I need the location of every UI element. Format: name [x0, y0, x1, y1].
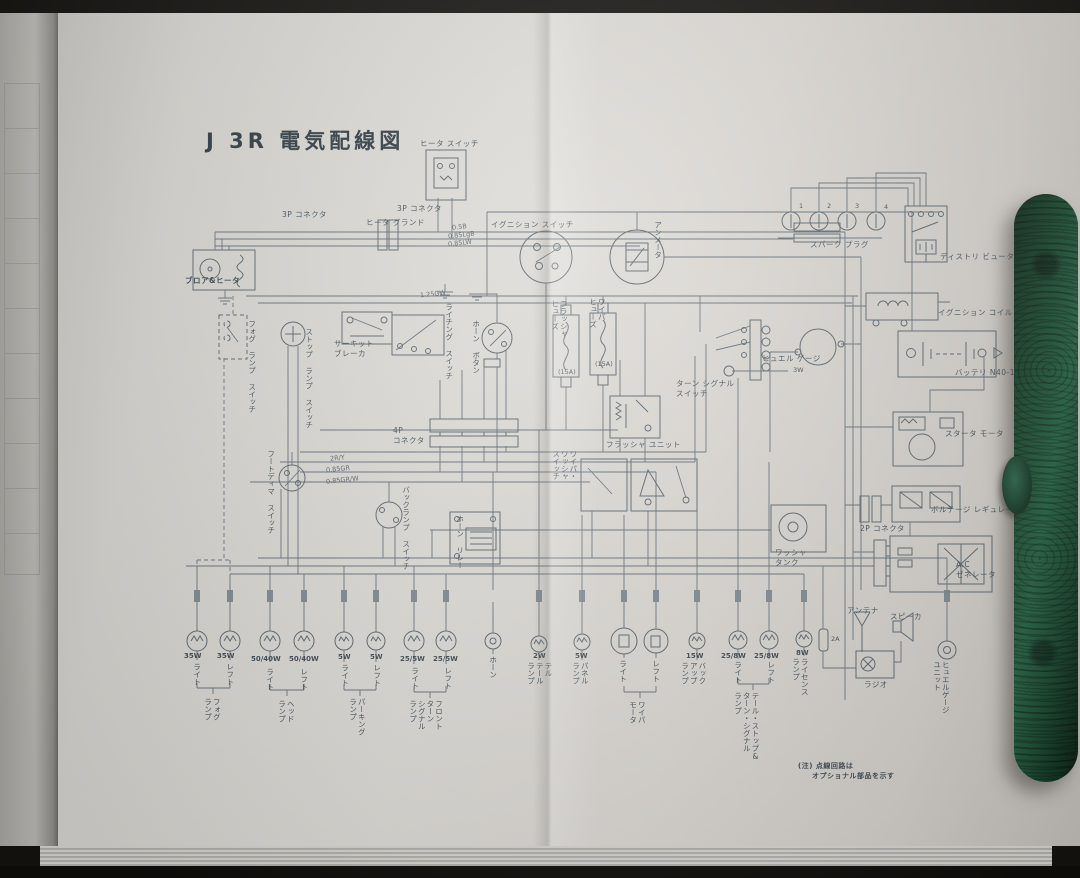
horn-button	[482, 323, 512, 367]
turn-signal-switch-label: ターン シグナル スイッチ	[676, 379, 735, 399]
lamp-watt: 35W	[217, 652, 234, 661]
lamp-group-panel: パネル ランプ	[571, 662, 588, 708]
wiper-fuse-rating: (15A)	[595, 360, 613, 368]
lamp-side: レフト	[225, 663, 234, 686]
lamp-side: ライト	[265, 668, 274, 691]
lamp-connectors	[194, 590, 950, 602]
lamp-watt: 25/5W	[433, 655, 458, 664]
antenna-symbol	[854, 612, 870, 652]
wiring-lines	[186, 173, 984, 700]
fuel-gauge-unit-label: ヒュエルゲージ ユニット	[932, 661, 949, 739]
circuit-breaker-label: サーキット ブレーカ	[334, 339, 374, 359]
lamp-watt: 50/40W	[251, 655, 281, 664]
lamp-side: ライト	[618, 660, 627, 683]
fog-lamp-switch-label: フォグ ランプ スイッチ	[247, 320, 256, 413]
lamp-side: ライト	[340, 664, 349, 687]
2a-fuse	[819, 629, 828, 651]
lighting-switch	[392, 315, 444, 355]
ammeter-label: アンメータ	[653, 221, 662, 259]
foot-dimmer-switch-label: フートディマ スイッチ	[266, 450, 275, 534]
radio-box	[856, 651, 894, 678]
flasher-unit-label: フラッシャ ユニット	[606, 440, 681, 450]
wiper-washer-switch-label: ワイパ・ ワッシャ スイッチ	[551, 450, 577, 512]
lamp-group-tail: テール・ストップ& ターン・シグナル ランプ	[733, 692, 759, 770]
ignition-coil-label: イグニション コイル	[938, 308, 1013, 318]
wiring-diagram	[0, 0, 1080, 878]
spark-plug-number-2: 2	[827, 202, 831, 210]
stop-lamp-switch	[281, 322, 305, 346]
flasher-unit	[610, 396, 660, 438]
fog-lamp-switch	[219, 315, 247, 359]
washer-tank-label: ワッシャ タンク	[775, 548, 807, 568]
note-line2: オプショナル部品を示す	[812, 772, 895, 781]
ignition-coil	[866, 293, 938, 326]
lamp-watt: 25/8W	[721, 652, 746, 661]
lamp-side: レフト	[443, 667, 452, 690]
lamp-side: レフト	[372, 664, 381, 687]
lamp-side: レフト	[651, 660, 660, 683]
4p-connector	[430, 419, 518, 447]
wiper-motor	[611, 628, 668, 654]
fuse-2a-label: 2A	[831, 635, 840, 643]
lamp-side: レフト	[299, 668, 308, 691]
optional-dashed-lines	[197, 296, 392, 574]
fuel-gauge-label: ヒュエル ゲージ	[762, 354, 821, 364]
connector-3p-right-label: 3P コネクタ	[397, 204, 442, 214]
photo-of-manual-page: J 3R 電気配線図 ヒータ スイッチ 3P コネクタ ヒータ グランド 3P …	[0, 0, 1080, 878]
lamp-side: ライト	[410, 667, 419, 690]
wiper-washer-switch	[581, 459, 697, 511]
radio-label: ラジオ	[864, 680, 888, 690]
fuel-gauge-unit	[938, 641, 956, 659]
lamp-watt: 50/40W	[289, 655, 319, 664]
spark-plugs	[782, 212, 885, 230]
starter-motor-label: スタータ モータ	[945, 429, 1004, 439]
ac-generator-label: A.C ゼネレータ	[956, 560, 996, 580]
heater-switch	[426, 150, 466, 200]
lamp-watt: 5W	[575, 652, 588, 661]
lamp-watt: 8W	[796, 649, 809, 658]
lamp-group-front-turn: フロント ターン シグナル ランプ	[408, 700, 443, 766]
starter-motor	[893, 412, 963, 466]
heater-ground-label: ヒータ グランド	[366, 218, 425, 228]
connector-4p-label: 4P コネクタ	[393, 426, 425, 446]
lamp-group-wiper-motor: ワイパ モータ	[628, 701, 645, 747]
spark-plug-number-4: 4	[884, 203, 888, 211]
lamp-group-tell-tale: テル テール ランプ	[526, 662, 552, 712]
turn-signal-3w-label: 3W	[793, 366, 804, 374]
lamp-group-license: ライセンス ランプ	[791, 658, 808, 706]
note-line1: (注) 点線回路は	[798, 762, 853, 771]
stop-lamp-switch-label: ストップ ランプ スイッチ	[304, 328, 313, 429]
book-weight-knob	[1002, 456, 1032, 514]
lamp-watt: 5W	[338, 653, 351, 662]
speaker-label: スピーカ	[890, 612, 922, 622]
lamp-watt: 35W	[184, 652, 201, 661]
ignition-switch-label: イグニション スイッチ	[491, 220, 574, 230]
horn-relay-label: ホーン リレー	[455, 515, 464, 569]
lamp-bulbs	[187, 631, 812, 652]
washer-tank	[771, 505, 826, 552]
spark-plug-number-1: 1	[799, 202, 803, 210]
lamp-group-backup: バック アップ ランプ	[680, 662, 706, 702]
lamp-watt: 25/8W	[754, 652, 779, 661]
lamp-watt: 25/5W	[400, 655, 425, 664]
green-carved-book-weight	[1014, 194, 1078, 782]
distributor-label: ディストリ ビュータ	[940, 252, 1014, 262]
page-title: J 3R 電気配線図	[206, 128, 404, 155]
connector-2p-label: 2P コネクタ	[860, 524, 905, 534]
spark-plug-label: スパーク プラグ	[810, 240, 869, 250]
flasher-fuse-label: フラッシャ ヒューズ	[550, 300, 567, 366]
battery-label: バッテリ N40-17	[955, 368, 1020, 378]
wire-label: 2R/Y	[330, 453, 346, 463]
lamp-watt: 2W	[533, 652, 546, 661]
table-background-top	[0, 0, 1080, 13]
back-lamp-switch-label: バックランプ スイッチ	[401, 486, 410, 570]
table-background-bottom	[0, 866, 1080, 878]
back-lamp-switch	[376, 502, 402, 528]
ground-symbols	[218, 284, 497, 323]
lamp-group-parking: パーキング ランプ	[348, 698, 365, 774]
lamp-side: ライト	[192, 663, 201, 686]
lamp-group-fog: フォグ ランプ	[203, 698, 220, 754]
lamp-watt: 15W	[686, 652, 703, 661]
heater-switch-label: ヒータ スイッチ	[420, 139, 479, 149]
connector-3p-left-label: 3P コネクタ	[282, 210, 327, 220]
page-stack-edge	[40, 846, 1052, 866]
lamp-group-head: ヘッド ランプ	[277, 700, 294, 756]
wiper-fuse-label: ワイパ ヒューズ	[588, 298, 605, 358]
lamp-watt: 5W	[370, 653, 383, 662]
voltage-regulator	[892, 486, 960, 522]
blower-heater-label: ブロア&ヒータ	[185, 276, 240, 286]
horn-bottom	[485, 633, 501, 649]
lamp-side: レフト	[766, 661, 775, 684]
antenna-label: アンテナ	[847, 606, 879, 616]
lighting-switch-label: ライチング スイッチ	[444, 303, 453, 380]
horn-button-label: ホーン ボタン	[471, 320, 480, 374]
lamp-group-horn: ホーン	[488, 656, 497, 679]
lamp-side: ライト	[733, 661, 742, 684]
flasher-fuse-rating: (15A)	[558, 368, 576, 376]
2p-connector	[860, 496, 881, 522]
spark-plug-number-3: 3	[855, 202, 859, 210]
